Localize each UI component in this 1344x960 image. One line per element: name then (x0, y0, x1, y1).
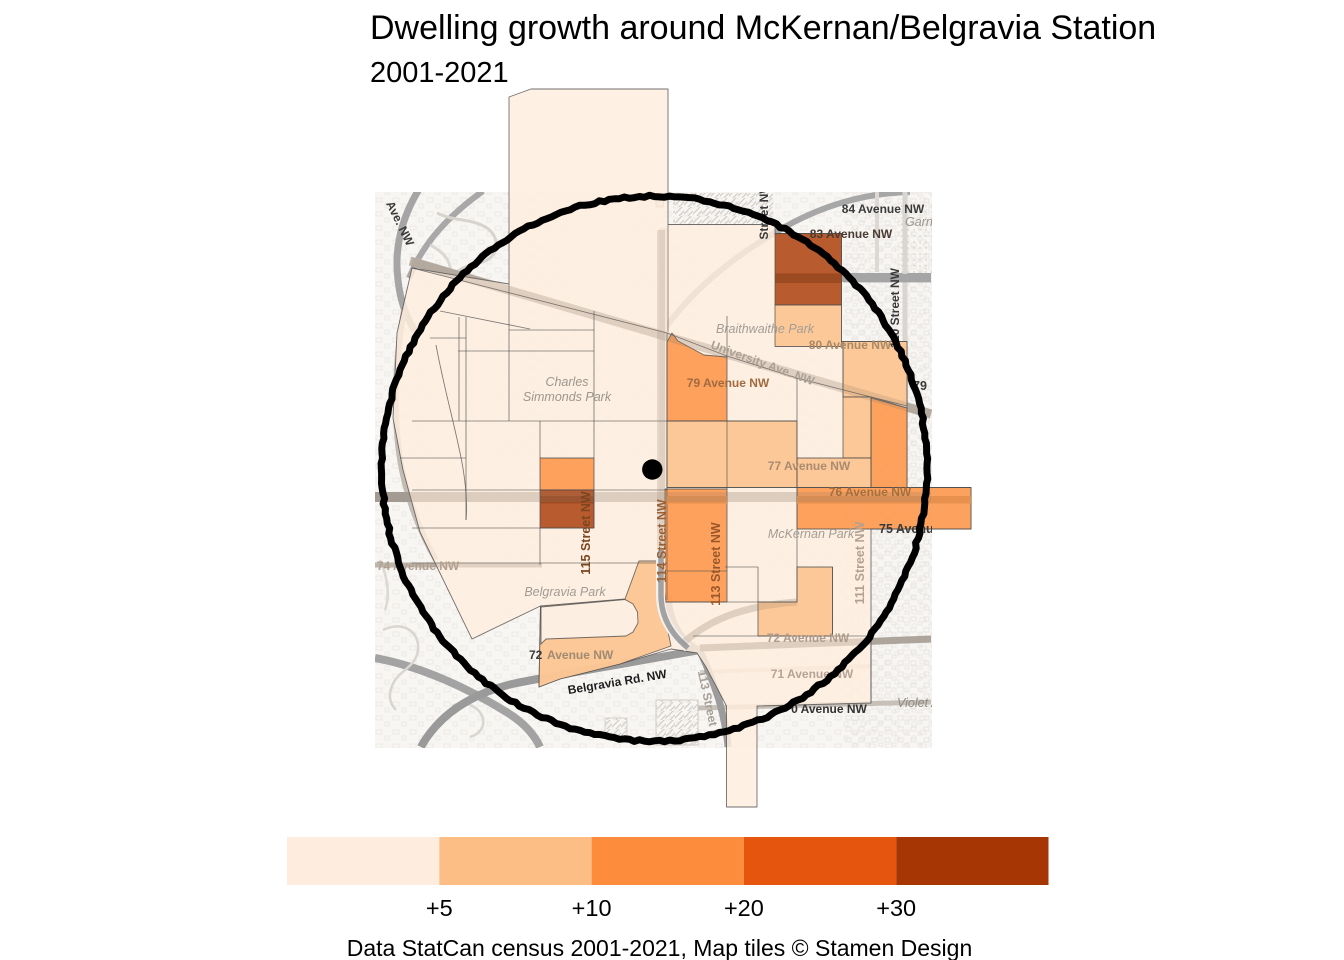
svg-text:113 Street NW: 113 Street NW (709, 522, 723, 606)
svg-text:72 Avenue NW: 72 Avenue NW (767, 631, 850, 645)
svg-text:115 Street NW: 115 Street NW (579, 491, 593, 575)
svg-text:Avenue NW: Avenue NW (547, 648, 614, 662)
svg-text:76 Avenue NW: 76 Avenue NW (829, 485, 912, 499)
svg-text:80 Avenue NW: 80 Avenue NW (809, 338, 892, 352)
svg-text:Braithwaithe Park: Braithwaithe Park (716, 322, 815, 336)
svg-text:Belgravia Park: Belgravia Park (524, 585, 606, 599)
svg-text:114 Street NW: 114 Street NW (655, 499, 669, 583)
svg-text:Data StatCan census 2001-2021,: Data StatCan census 2001-2021, Map tiles… (347, 935, 973, 960)
svg-text:Charles: Charles (545, 375, 588, 389)
svg-text:111 Street NW: 111 Street NW (853, 521, 867, 604)
svg-text:Dwelling growth around McKerna: Dwelling growth around McKernan/Belgravi… (370, 9, 1156, 47)
svg-text:84 Avenue NW: 84 Avenue NW (842, 202, 925, 216)
svg-text:+30: +30 (876, 895, 916, 921)
svg-text:0 Avenue NW: 0 Avenue NW (791, 702, 867, 716)
svg-text:75 Avenue: 75 Avenue (879, 522, 941, 536)
svg-text:74 Avenue NW: 74 Avenue NW (377, 559, 460, 573)
svg-text:+20: +20 (724, 895, 764, 921)
svg-text:77 Avenue NW: 77 Avenue NW (768, 459, 851, 473)
svg-text:+10: +10 (572, 895, 612, 921)
svg-text:79 Avenue NW: 79 Avenue NW (687, 376, 770, 390)
svg-text:2001-2021: 2001-2021 (370, 57, 509, 89)
svg-text:Simmonds Park: Simmonds Park (523, 390, 612, 404)
svg-text:+5: +5 (426, 895, 453, 921)
svg-text:McKernan Park: McKernan Park (768, 527, 855, 541)
svg-text:72: 72 (529, 648, 543, 662)
svg-text:83 Avenue NW: 83 Avenue NW (810, 227, 893, 241)
